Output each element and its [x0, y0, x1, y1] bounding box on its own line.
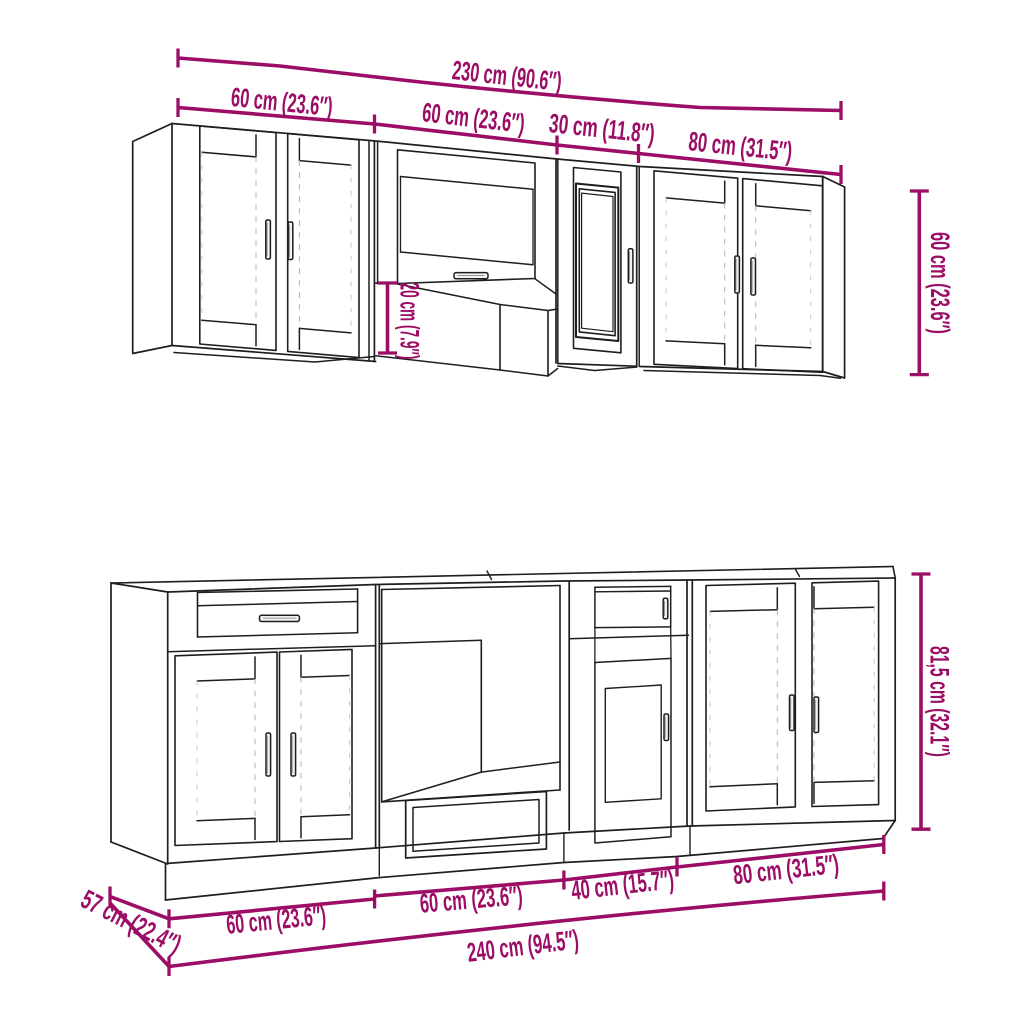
- svg-text:60 cm (23.6″): 60 cm (23.6″): [925, 232, 955, 334]
- svg-text:20 cm (7.9″): 20 cm (7.9″): [395, 283, 425, 360]
- svg-text:81,5 cm (32.1″): 81,5 cm (32.1″): [925, 646, 955, 757]
